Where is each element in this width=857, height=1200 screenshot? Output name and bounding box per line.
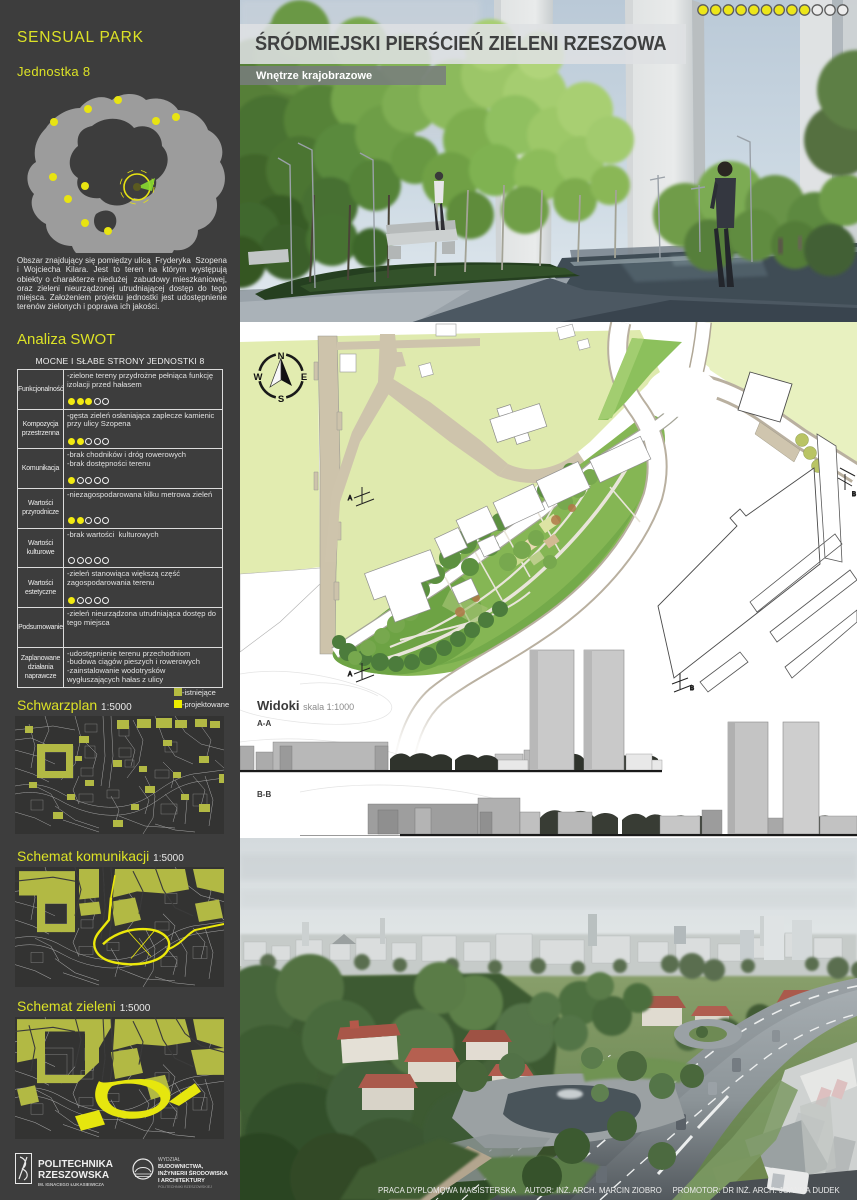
svg-text:IM. IGNACEGO ŁUKASIEWICZA: IM. IGNACEGO ŁUKASIEWICZA bbox=[38, 1182, 105, 1187]
svg-text:A: A bbox=[348, 672, 352, 678]
svg-text:S: S bbox=[278, 394, 284, 405]
svg-text:RZESZOWSKA: RZESZOWSKA bbox=[38, 1170, 109, 1181]
svg-text:POLITECHNIKA: POLITECHNIKA bbox=[38, 1159, 113, 1170]
svg-text:A: A bbox=[348, 496, 352, 502]
svg-text:POLITECHNIKI RZESZOWSKIEJ: POLITECHNIKI RZESZOWSKIEJ bbox=[158, 1185, 212, 1189]
svg-text:B: B bbox=[852, 492, 856, 498]
svg-text:INŻYNIERII ŚRODOWISKA: INŻYNIERII ŚRODOWISKA bbox=[158, 1170, 228, 1177]
svg-text:N: N bbox=[278, 351, 285, 362]
svg-text:BUDOWNICTWA,: BUDOWNICTWA, bbox=[158, 1164, 204, 1170]
svg-text:I ARCHITEKTURY: I ARCHITEKTURY bbox=[158, 1178, 205, 1184]
svg-text:E: E bbox=[301, 372, 307, 383]
svg-text:WYDZIAŁ: WYDZIAŁ bbox=[158, 1157, 180, 1163]
svg-text:W: W bbox=[254, 372, 263, 383]
svg-text:B: B bbox=[690, 686, 694, 692]
